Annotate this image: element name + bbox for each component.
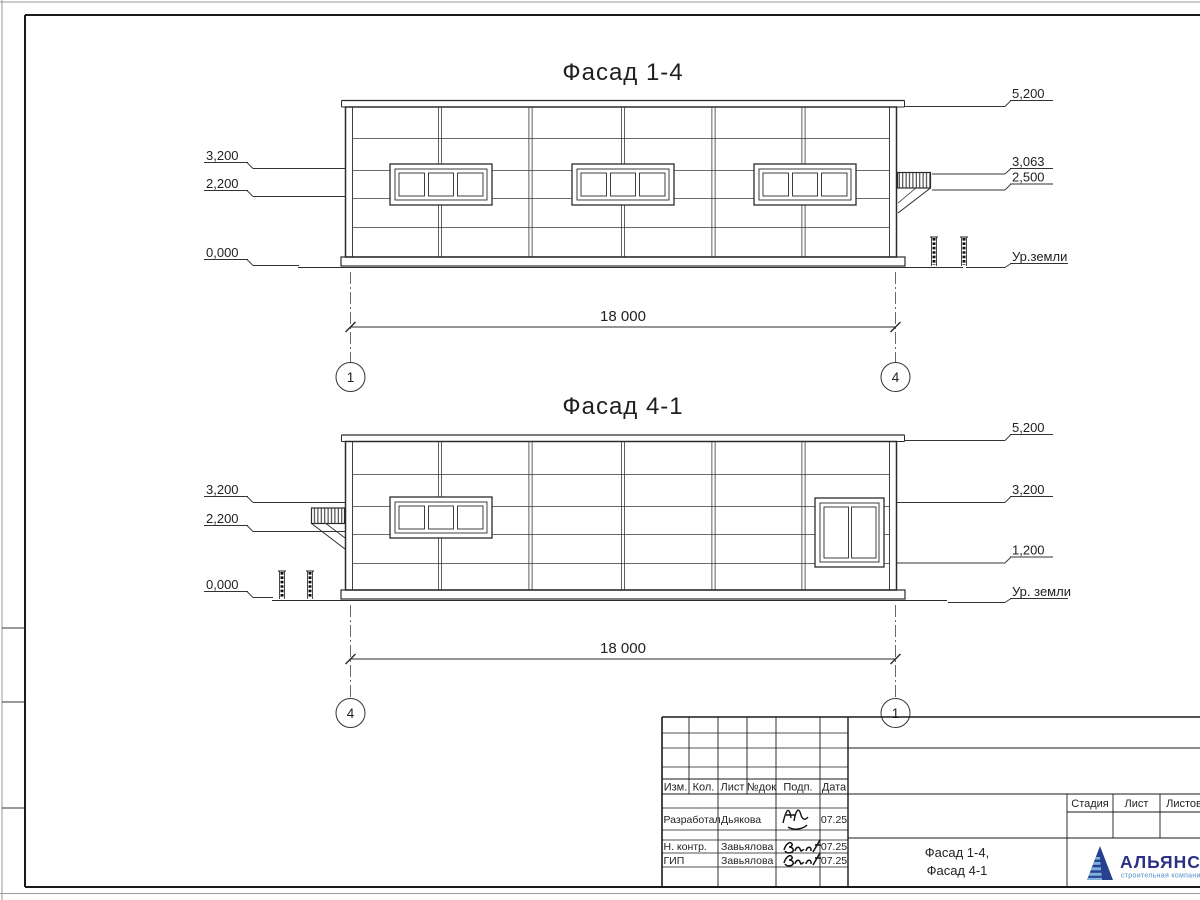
axis-number: 4 — [892, 370, 900, 385]
facade-1-4-window-3 — [754, 164, 856, 205]
facade-1-4-roof-cap — [342, 101, 905, 108]
drawing-frame — [25, 15, 1200, 887]
facade-1-4-posts — [930, 237, 968, 266]
company-logo: АЛЬЯНС строительная компания — [1086, 846, 1200, 880]
col-header: Кол. — [693, 782, 715, 794]
drawing-name-line-1: Фасад 1-4, — [925, 845, 989, 860]
blueprint-sheet: Фасад 1-4 — [0, 0, 1200, 900]
facade-1-4-canopy — [898, 173, 931, 214]
col-header: Лист — [721, 782, 745, 794]
elevation-mark: 5,200 — [1012, 86, 1045, 101]
elevation-mark: 3,200 — [206, 148, 239, 163]
facade-1-4-drawing: Фасад 1-4 — [204, 59, 1068, 392]
date-value: 07.25 — [821, 814, 847, 826]
railing-post — [960, 237, 968, 266]
facade-1-4-window-1 — [390, 164, 492, 205]
dimension-value: 18 000 — [600, 640, 646, 657]
elevation-mark: 2,500 — [1012, 170, 1045, 185]
person-name: Дьякова — [721, 814, 761, 826]
railing-post — [930, 237, 938, 266]
col-header: Подп. — [783, 782, 812, 794]
elevation-mark: 3,200 — [1012, 482, 1045, 497]
elevation-mark: 2,200 — [206, 511, 239, 526]
ground-level-label: Ур.земли — [1012, 249, 1067, 264]
facade-1-4-base — [298, 257, 963, 268]
brand-subtitle: строительная компания — [1121, 873, 1200, 880]
facade-4-1-marks-left: 3,200 2,200 0,000 — [204, 482, 346, 598]
railing-post — [278, 571, 286, 599]
facade-4-1-vertical-joints — [438, 442, 805, 591]
elevation-mark: 0,000 — [206, 577, 239, 592]
axis-number: 4 — [347, 706, 355, 721]
role-label: ГИП — [664, 855, 685, 867]
role-label: Н. контр. — [664, 841, 707, 853]
person-name: Завьялова — [721, 855, 773, 867]
signature-nkontr — [784, 840, 821, 853]
role-label: Разработал — [664, 814, 721, 826]
facade-4-1-dimension: 18 000 4 1 — [336, 605, 910, 728]
axis-number: 1 — [892, 706, 900, 721]
logo-pyramid-icon — [1086, 846, 1113, 880]
elevation-mark: 3,200 — [206, 482, 239, 497]
axis-number: 1 — [347, 370, 355, 385]
date-value: 07.25 — [821, 841, 847, 853]
side-stamp-strip — [2, 628, 25, 808]
col-header: Изм. — [664, 782, 688, 794]
elevation-mark: 5,200 — [1012, 420, 1045, 435]
facade-4-1-window-2 — [815, 498, 884, 567]
elevation-mark: 1,200 — [1012, 543, 1045, 558]
facade-4-1-posts — [278, 571, 314, 599]
signature-gip — [784, 853, 821, 866]
person-name: Завьялова — [721, 841, 773, 853]
facade-4-1-drawing: Фасад 4-1 — [204, 393, 1071, 728]
elevation-mark: 0,000 — [206, 245, 239, 260]
date-value: 07.25 — [821, 855, 847, 867]
facade-1-4-title: Фасад 1-4 — [562, 59, 683, 86]
facade-1-4-dimension: 18 000 1 4 — [336, 272, 910, 392]
col-header: №док — [747, 782, 776, 794]
facade-4-1-title: Фасад 4-1 — [562, 393, 683, 420]
stage-sheet-headers: Стадия Лист Листов — [1071, 798, 1200, 810]
facade-4-1-canopy — [312, 508, 346, 549]
facade-1-4-window-2 — [572, 164, 674, 205]
dimension-value: 18 000 — [600, 308, 646, 325]
title-block: Изм. Кол. Лист №док Подп. Дата Разработа… — [662, 717, 1200, 887]
ground-level-label: Ур. земли — [1012, 584, 1071, 599]
facade-4-1-roof-cap — [342, 435, 905, 442]
drawing-name-cell: Фасад 1-4, Фасад 4-1 — [925, 845, 989, 878]
col-header: Дата — [822, 782, 847, 794]
railing-post — [306, 571, 314, 599]
facade-4-1-base — [272, 590, 947, 601]
paper-edges — [0, 0, 1200, 900]
sheets-header: Листов — [1166, 798, 1200, 810]
signature-razrabotal — [783, 810, 808, 829]
stage-header: Стадия — [1071, 798, 1109, 810]
facade-1-4-marks-left: 3,200 2,200 0,000 — [204, 148, 346, 266]
facade-4-1-window-1 — [390, 497, 492, 538]
sheet-header: Лист — [1125, 798, 1149, 810]
brand-name: АЛЬЯНС — [1120, 852, 1200, 872]
elevation-mark: 3,063 — [1012, 154, 1045, 169]
elevation-mark: 2,200 — [206, 176, 239, 191]
drawing-name-line-2: Фасад 4-1 — [927, 863, 988, 878]
facade-4-1-marks-right: 5,200 3,200 1,200 Ур. земли — [897, 420, 1071, 603]
